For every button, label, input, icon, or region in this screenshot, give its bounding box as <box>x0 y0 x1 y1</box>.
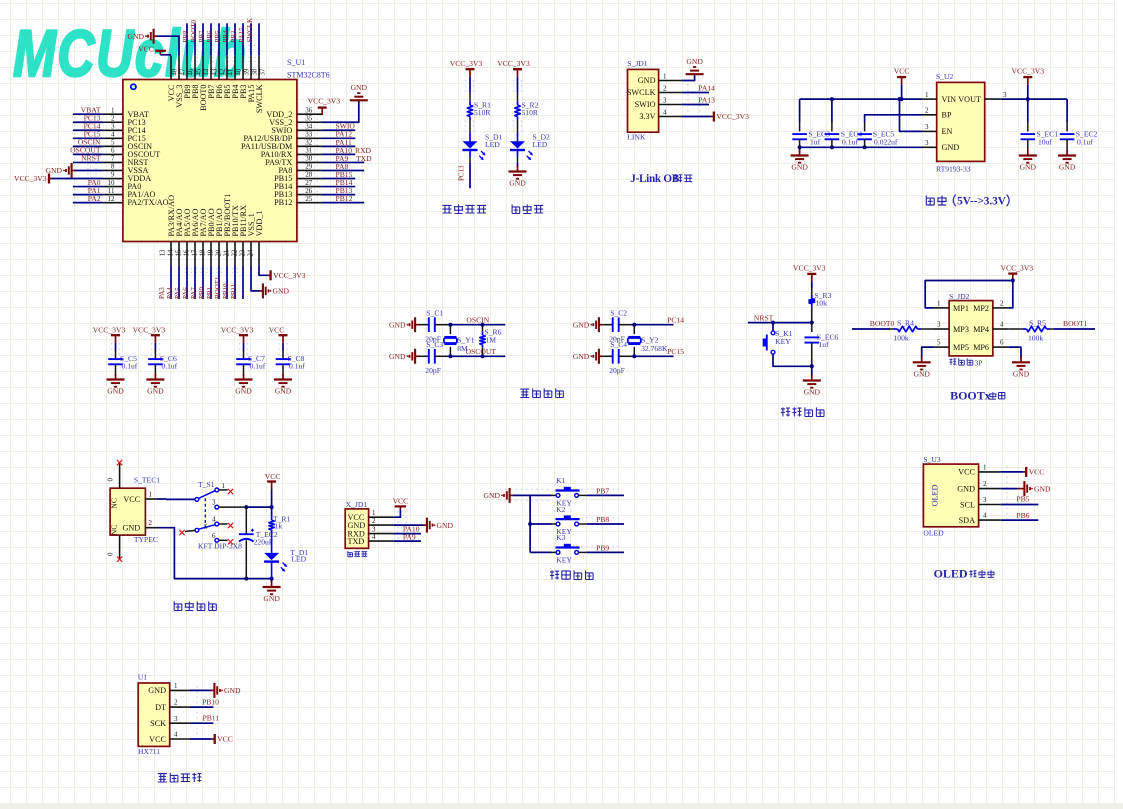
svg-text:26: 26 <box>305 187 313 195</box>
svg-text:1: 1 <box>111 106 115 114</box>
svg-text:T_S1: T_S1 <box>198 480 215 489</box>
svg-text:GND: GND <box>509 179 526 188</box>
svg-text:VCC_3V3: VCC_3V3 <box>1001 264 1034 273</box>
svg-text:PA3: PA3 <box>158 287 166 299</box>
svg-text:OLED: OLED <box>931 484 940 506</box>
svg-text:6: 6 <box>1000 339 1004 347</box>
svg-text:GND: GND <box>484 491 501 500</box>
svg-text:14: 14 <box>167 249 174 256</box>
svg-text:43: 43 <box>212 68 219 75</box>
svg-text:MP5: MP5 <box>953 343 969 352</box>
svg-text:MP3: MP3 <box>953 325 969 334</box>
svg-text:11: 11 <box>108 187 115 195</box>
svg-text:33: 33 <box>305 131 313 139</box>
svg-text:0: 0 <box>107 552 115 556</box>
svg-text:6: 6 <box>212 532 216 540</box>
svg-text:VCC: VCC <box>1029 468 1045 477</box>
svg-text:GND: GND <box>128 32 145 41</box>
svg-text:4: 4 <box>212 515 216 523</box>
svg-text:5: 5 <box>111 139 115 147</box>
svg-text:1: 1 <box>222 482 226 490</box>
svg-text:STM32C8T6: STM32C8T6 <box>287 71 330 80</box>
svg-text:S_C3: S_C3 <box>426 340 443 349</box>
svg-text:GND: GND <box>273 287 290 296</box>
svg-text:PC15: PC15 <box>667 347 684 356</box>
svg-text:LINK: LINK <box>627 133 646 142</box>
svg-text:27: 27 <box>305 179 313 187</box>
svg-text:GND: GND <box>942 143 960 152</box>
svg-text:VCC_3V3: VCC_3V3 <box>133 326 166 335</box>
svg-text:OLED: OLED <box>934 567 968 581</box>
svg-text:3: 3 <box>925 123 929 131</box>
svg-text:4: 4 <box>174 731 178 739</box>
svg-text:K1: K1 <box>556 476 565 485</box>
svg-text:GND: GND <box>148 686 166 695</box>
svg-text:10uf: 10uf <box>1038 138 1052 147</box>
svg-text:X_JD1: X_JD1 <box>346 500 368 509</box>
svg-text:GND: GND <box>275 387 292 396</box>
svg-text:8: 8 <box>111 163 115 171</box>
svg-text:3: 3 <box>1003 91 1007 99</box>
svg-text:GND: GND <box>389 352 406 361</box>
svg-text:48: 48 <box>172 68 179 75</box>
svg-text:PB12: PB12 <box>274 198 292 207</box>
svg-text:44: 44 <box>204 68 211 75</box>
svg-text:4: 4 <box>1000 321 1004 329</box>
svg-text:MP4: MP4 <box>973 325 989 334</box>
svg-text:10: 10 <box>108 179 116 187</box>
svg-text:4: 4 <box>663 108 667 116</box>
svg-text:S_U2: S_U2 <box>936 72 954 81</box>
svg-text:32: 32 <box>305 139 313 147</box>
svg-text:GND: GND <box>1059 163 1076 172</box>
svg-text:0.022uf: 0.022uf <box>874 138 898 147</box>
svg-text:10k: 10k <box>816 299 828 308</box>
svg-text:PB7: PB7 <box>596 487 609 496</box>
svg-text:S_C2: S_C2 <box>610 308 627 317</box>
svg-text:SDA: SDA <box>959 516 975 525</box>
svg-text:1: 1 <box>174 682 178 690</box>
svg-text:35: 35 <box>305 114 313 122</box>
svg-text:15: 15 <box>175 249 182 256</box>
svg-text:LED: LED <box>533 140 548 149</box>
svg-text:TXD: TXD <box>356 154 372 163</box>
svg-text:GND: GND <box>437 521 454 530</box>
svg-text:PB11: PB11 <box>203 713 220 722</box>
svg-text:S_U1: S_U1 <box>287 58 305 67</box>
svg-text:VCC: VCC <box>123 495 140 504</box>
svg-text:1: 1 <box>983 464 987 472</box>
svg-text:SWCLK: SWCLK <box>246 18 254 43</box>
svg-text:PB8: PB8 <box>182 30 190 43</box>
svg-text:GND: GND <box>804 388 821 397</box>
svg-text:VCC: VCC <box>269 326 285 335</box>
svg-text:45: 45 <box>196 68 203 75</box>
svg-text:MP1: MP1 <box>953 304 969 313</box>
svg-text:46: 46 <box>188 68 195 75</box>
svg-text:1: 1 <box>925 91 929 99</box>
svg-text:2: 2 <box>149 519 153 527</box>
svg-text:LED: LED <box>485 140 500 149</box>
svg-text:20pF: 20pF <box>425 366 441 375</box>
svg-text:TXD: TXD <box>348 537 365 546</box>
svg-text:LED: LED <box>291 554 306 563</box>
svg-text:PB9: PB9 <box>596 544 609 553</box>
svg-text:2: 2 <box>174 699 178 707</box>
svg-text:510R: 510R <box>522 108 539 117</box>
svg-text:9: 9 <box>111 171 115 179</box>
svg-text:24: 24 <box>247 249 254 256</box>
svg-text:3: 3 <box>111 122 115 130</box>
svg-text:3: 3 <box>174 715 178 723</box>
svg-text:DT: DT <box>155 703 166 712</box>
svg-text:25: 25 <box>305 195 313 203</box>
svg-text:GND: GND <box>1013 370 1030 379</box>
svg-text:PB12: PB12 <box>336 194 353 203</box>
svg-text:NRST: NRST <box>81 154 101 163</box>
svg-text:VCC_3V3: VCC_3V3 <box>793 263 826 272</box>
svg-text:100k: 100k <box>1028 334 1043 343</box>
svg-text:PB7: PB7 <box>198 30 206 43</box>
svg-text:SWCLK: SWCLK <box>255 84 264 113</box>
svg-text:PA13: PA13 <box>698 96 715 105</box>
svg-text:PA14: PA14 <box>698 84 715 93</box>
svg-text:13: 13 <box>159 249 166 256</box>
svg-text:GND: GND <box>913 370 930 379</box>
svg-text:47: 47 <box>180 68 187 75</box>
svg-text:GND: GND <box>351 83 368 92</box>
svg-text:1: 1 <box>372 509 376 517</box>
svg-text:PA7: PA7 <box>190 287 198 299</box>
svg-text:U1: U1 <box>138 673 147 682</box>
svg-text:19: 19 <box>207 249 214 256</box>
svg-text:3: 3 <box>212 499 216 507</box>
svg-text:6: 6 <box>111 147 115 155</box>
svg-text:3.3V: 3.3V <box>639 112 655 121</box>
svg-text:PA2/TX/AO: PA2/TX/AO <box>128 198 169 207</box>
svg-text:VCC_3V3: VCC_3V3 <box>273 271 306 280</box>
svg-text:22: 22 <box>231 249 238 256</box>
svg-text:510R: 510R <box>474 108 491 117</box>
svg-text:29: 29 <box>305 163 313 171</box>
svg-text:42: 42 <box>220 68 227 75</box>
svg-text:39: 39 <box>244 68 251 75</box>
svg-text:GND: GND <box>107 387 124 396</box>
svg-text:18: 18 <box>199 249 206 256</box>
svg-text:GND: GND <box>235 387 252 396</box>
svg-text:VCC: VCC <box>149 735 166 744</box>
svg-text:OLED: OLED <box>923 529 944 538</box>
svg-text:MP6: MP6 <box>973 343 989 352</box>
svg-text:1uf: 1uf <box>819 340 830 349</box>
svg-text:12: 12 <box>108 195 116 203</box>
svg-text:20: 20 <box>215 249 222 256</box>
svg-text:2: 2 <box>1000 299 1004 307</box>
svg-text:PB4: PB4 <box>222 30 230 43</box>
svg-text:3: 3 <box>937 321 941 329</box>
svg-text:38: 38 <box>252 68 259 75</box>
svg-text:GND: GND <box>957 484 975 493</box>
svg-text:7: 7 <box>111 155 115 163</box>
svg-text:VOUT: VOUT <box>958 95 981 104</box>
svg-text:40: 40 <box>236 68 243 75</box>
svg-text:PB5: PB5 <box>1016 495 1029 504</box>
svg-text:GND: GND <box>147 387 164 396</box>
svg-text:3: 3 <box>925 139 929 147</box>
svg-text:0.1uf: 0.1uf <box>250 361 266 370</box>
svg-text:PB11: PB11 <box>230 283 238 299</box>
svg-text:VCC: VCC <box>138 45 154 54</box>
svg-text:37: 37 <box>260 68 267 75</box>
svg-text:1: 1 <box>663 72 667 80</box>
svg-text:GND: GND <box>573 320 590 329</box>
svg-text:S_JD1: S_JD1 <box>627 59 647 68</box>
svg-text:VCC: VCC <box>958 468 975 477</box>
svg-text:J-Link OB: J-Link OB <box>630 173 679 185</box>
svg-text:0.1uf: 0.1uf <box>122 361 138 370</box>
svg-text:VCC: VCC <box>393 496 409 505</box>
svg-text:GND: GND <box>1020 163 1037 172</box>
svg-text:PA4: PA4 <box>166 287 174 299</box>
svg-text:1k: 1k <box>275 522 283 531</box>
svg-text:3: 3 <box>663 96 667 104</box>
svg-text:VCC: VCC <box>217 735 233 744</box>
svg-text:PB3: PB3 <box>230 30 238 43</box>
svg-text:PC14: PC14 <box>667 315 684 324</box>
svg-text:100k: 100k <box>894 334 909 343</box>
svg-text:PB10: PB10 <box>202 697 219 706</box>
svg-text:S_C1: S_C1 <box>426 308 443 317</box>
svg-text:VCC_3V3: VCC_3V3 <box>308 97 341 106</box>
svg-text:SWCLK: SWCLK <box>627 88 656 97</box>
svg-text:4: 4 <box>372 533 376 541</box>
svg-text:PC13: PC13 <box>457 165 465 181</box>
svg-text:EN: EN <box>942 127 953 136</box>
svg-text:2: 2 <box>372 517 376 525</box>
svg-text:GND: GND <box>224 686 241 695</box>
svg-text:KFT DIP-3X8: KFT DIP-3X8 <box>198 542 242 551</box>
svg-text:PB5: PB5 <box>214 30 222 43</box>
svg-text:GND: GND <box>1034 484 1051 493</box>
svg-text:31: 31 <box>305 147 313 155</box>
svg-text:TYPEC: TYPEC <box>134 535 158 544</box>
svg-text:30: 30 <box>305 155 313 163</box>
svg-text:34: 34 <box>305 122 313 130</box>
svg-text:VCC_3V3: VCC_3V3 <box>14 174 47 183</box>
svg-text:BOOTx: BOOTx <box>950 389 991 403</box>
svg-text:NC: NC <box>110 525 119 536</box>
svg-text:KEY: KEY <box>556 556 572 565</box>
svg-text:K2: K2 <box>556 505 565 514</box>
svg-text:PB6: PB6 <box>206 30 214 43</box>
svg-text:1uf: 1uf <box>810 138 821 147</box>
svg-text:VCC_3V3: VCC_3V3 <box>450 59 483 68</box>
svg-text:28: 28 <box>305 171 313 179</box>
svg-text:32.768K: 32.768K <box>641 344 668 353</box>
svg-text:PB8: PB8 <box>596 515 609 524</box>
svg-text:OSCIN: OSCIN <box>466 315 489 324</box>
svg-text:17: 17 <box>191 249 198 256</box>
svg-text:0.1uf: 0.1uf <box>1077 138 1093 147</box>
svg-text:GND: GND <box>122 523 140 532</box>
svg-text:HX711: HX711 <box>138 747 160 756</box>
svg-text:0.1uf: 0.1uf <box>161 361 177 370</box>
svg-text:VCC_3V3: VCC_3V3 <box>221 326 254 335</box>
svg-text:20pF: 20pF <box>609 366 625 375</box>
svg-text:8M: 8M <box>457 344 468 353</box>
svg-text:MP2: MP2 <box>973 304 989 313</box>
svg-text:VIN: VIN <box>942 95 957 104</box>
svg-text:16: 16 <box>183 249 190 256</box>
svg-text:21: 21 <box>223 250 230 257</box>
svg-text:BOOT0: BOOT0 <box>870 319 895 328</box>
svg-text:GND: GND <box>791 163 808 172</box>
svg-text:VCC_3V3: VCC_3V3 <box>716 112 749 121</box>
svg-text:VCC_3V3: VCC_3V3 <box>93 326 126 335</box>
svg-text:2: 2 <box>983 480 987 488</box>
svg-text:S_U3: S_U3 <box>923 455 941 464</box>
svg-text:PA2: PA2 <box>88 194 101 203</box>
svg-text:220uF: 220uF <box>254 538 273 547</box>
svg-text:5: 5 <box>937 339 941 347</box>
svg-text:S_R4: S_R4 <box>897 318 914 327</box>
svg-text:NRST: NRST <box>754 313 774 322</box>
svg-text:VCC_3V3: VCC_3V3 <box>1012 67 1045 76</box>
svg-text:S_C4: S_C4 <box>610 340 627 349</box>
svg-text:S_TEC1: S_TEC1 <box>134 476 160 485</box>
svg-text:PB1: PB1 <box>206 286 214 299</box>
svg-text:5V-->3.3V: 5V-->3.3V <box>957 196 1006 208</box>
svg-text:BP: BP <box>942 111 952 120</box>
svg-text:36: 36 <box>305 106 313 114</box>
svg-text:2: 2 <box>111 114 115 122</box>
svg-text:RT9193-33: RT9193-33 <box>936 165 971 174</box>
svg-text:4: 4 <box>983 512 987 520</box>
svg-text:41: 41 <box>228 69 235 76</box>
svg-text:4: 4 <box>111 131 115 139</box>
svg-text:NC: NC <box>110 498 119 509</box>
svg-text:1: 1 <box>937 299 941 307</box>
svg-text:BOOT0: BOOT0 <box>190 19 198 42</box>
svg-text:SWIO: SWIO <box>635 100 656 109</box>
svg-text:GND: GND <box>686 57 703 66</box>
svg-text:OSCOUT: OSCOUT <box>466 347 497 356</box>
svg-text:PA15: PA15 <box>238 27 246 43</box>
svg-text:GND: GND <box>638 76 656 85</box>
svg-text:0.1uf: 0.1uf <box>289 361 305 370</box>
svg-text:0: 0 <box>107 478 115 482</box>
svg-text:S_R5: S_R5 <box>1029 318 1046 327</box>
svg-text:3: 3 <box>983 496 987 504</box>
svg-text:SCK: SCK <box>150 719 166 728</box>
svg-text:3P: 3P <box>975 359 983 368</box>
svg-text:PA9: PA9 <box>403 532 416 541</box>
svg-text:2: 2 <box>925 107 929 115</box>
svg-text:2: 2 <box>663 84 667 92</box>
svg-text:GND: GND <box>389 320 406 329</box>
svg-text:0.1uf: 0.1uf <box>842 138 858 147</box>
svg-text:GND: GND <box>573 352 590 361</box>
svg-text:PB6: PB6 <box>1016 511 1029 520</box>
svg-text:GND: GND <box>263 594 280 603</box>
svg-text:PA5: PA5 <box>174 287 182 299</box>
svg-text:VCC_3V3: VCC_3V3 <box>497 59 530 68</box>
svg-text:BOOT1: BOOT1 <box>1063 319 1088 328</box>
svg-text:VDD_1: VDD_1 <box>255 211 264 237</box>
svg-text:1: 1 <box>149 490 153 498</box>
svg-text:KEY: KEY <box>775 337 791 346</box>
svg-text:PB0: PB0 <box>198 286 206 299</box>
svg-text:23: 23 <box>239 249 246 256</box>
svg-text:SCL: SCL <box>960 500 975 509</box>
svg-text:VCC: VCC <box>265 472 281 481</box>
svg-text:VCC: VCC <box>894 67 910 76</box>
svg-text:PB10: PB10 <box>222 283 230 299</box>
svg-text:BOOT1: BOOT1 <box>214 276 222 299</box>
svg-text:K3: K3 <box>556 533 565 542</box>
svg-text:1M: 1M <box>486 335 497 344</box>
svg-text:PA6: PA6 <box>182 287 190 299</box>
